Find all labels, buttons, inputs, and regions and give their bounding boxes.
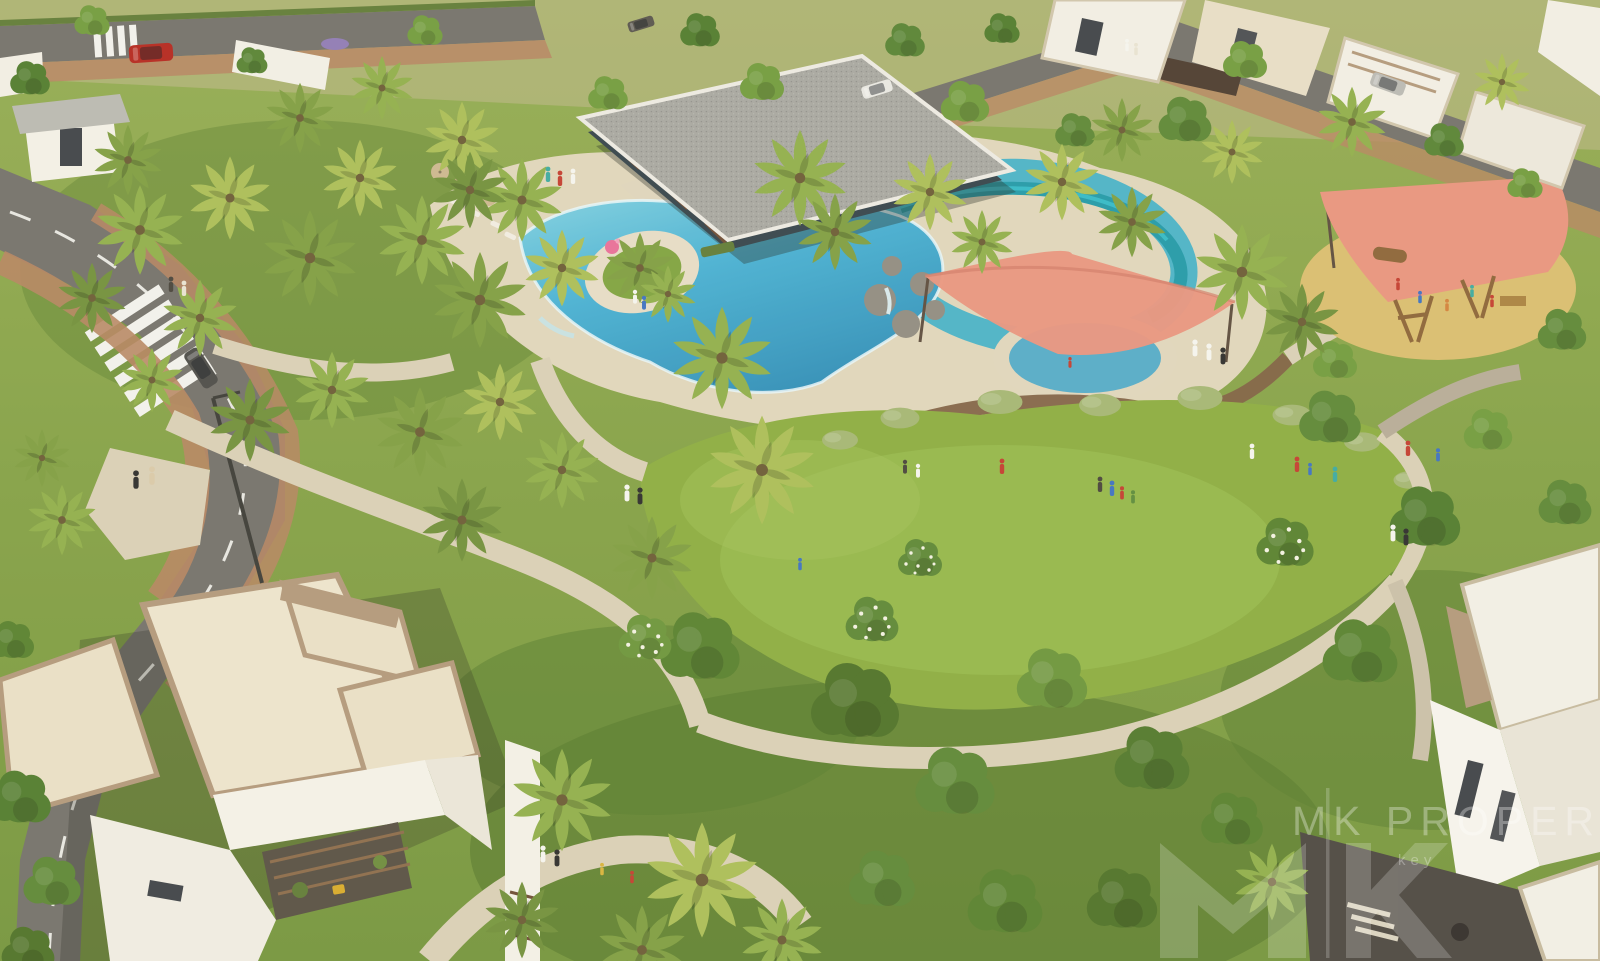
watermark-brand-text: MK PROPERTIES [1292, 798, 1600, 845]
watermark-tagline-text: key [1398, 852, 1600, 869]
aerial-community-rendering: MK PROPERTIES key [0, 0, 1600, 961]
